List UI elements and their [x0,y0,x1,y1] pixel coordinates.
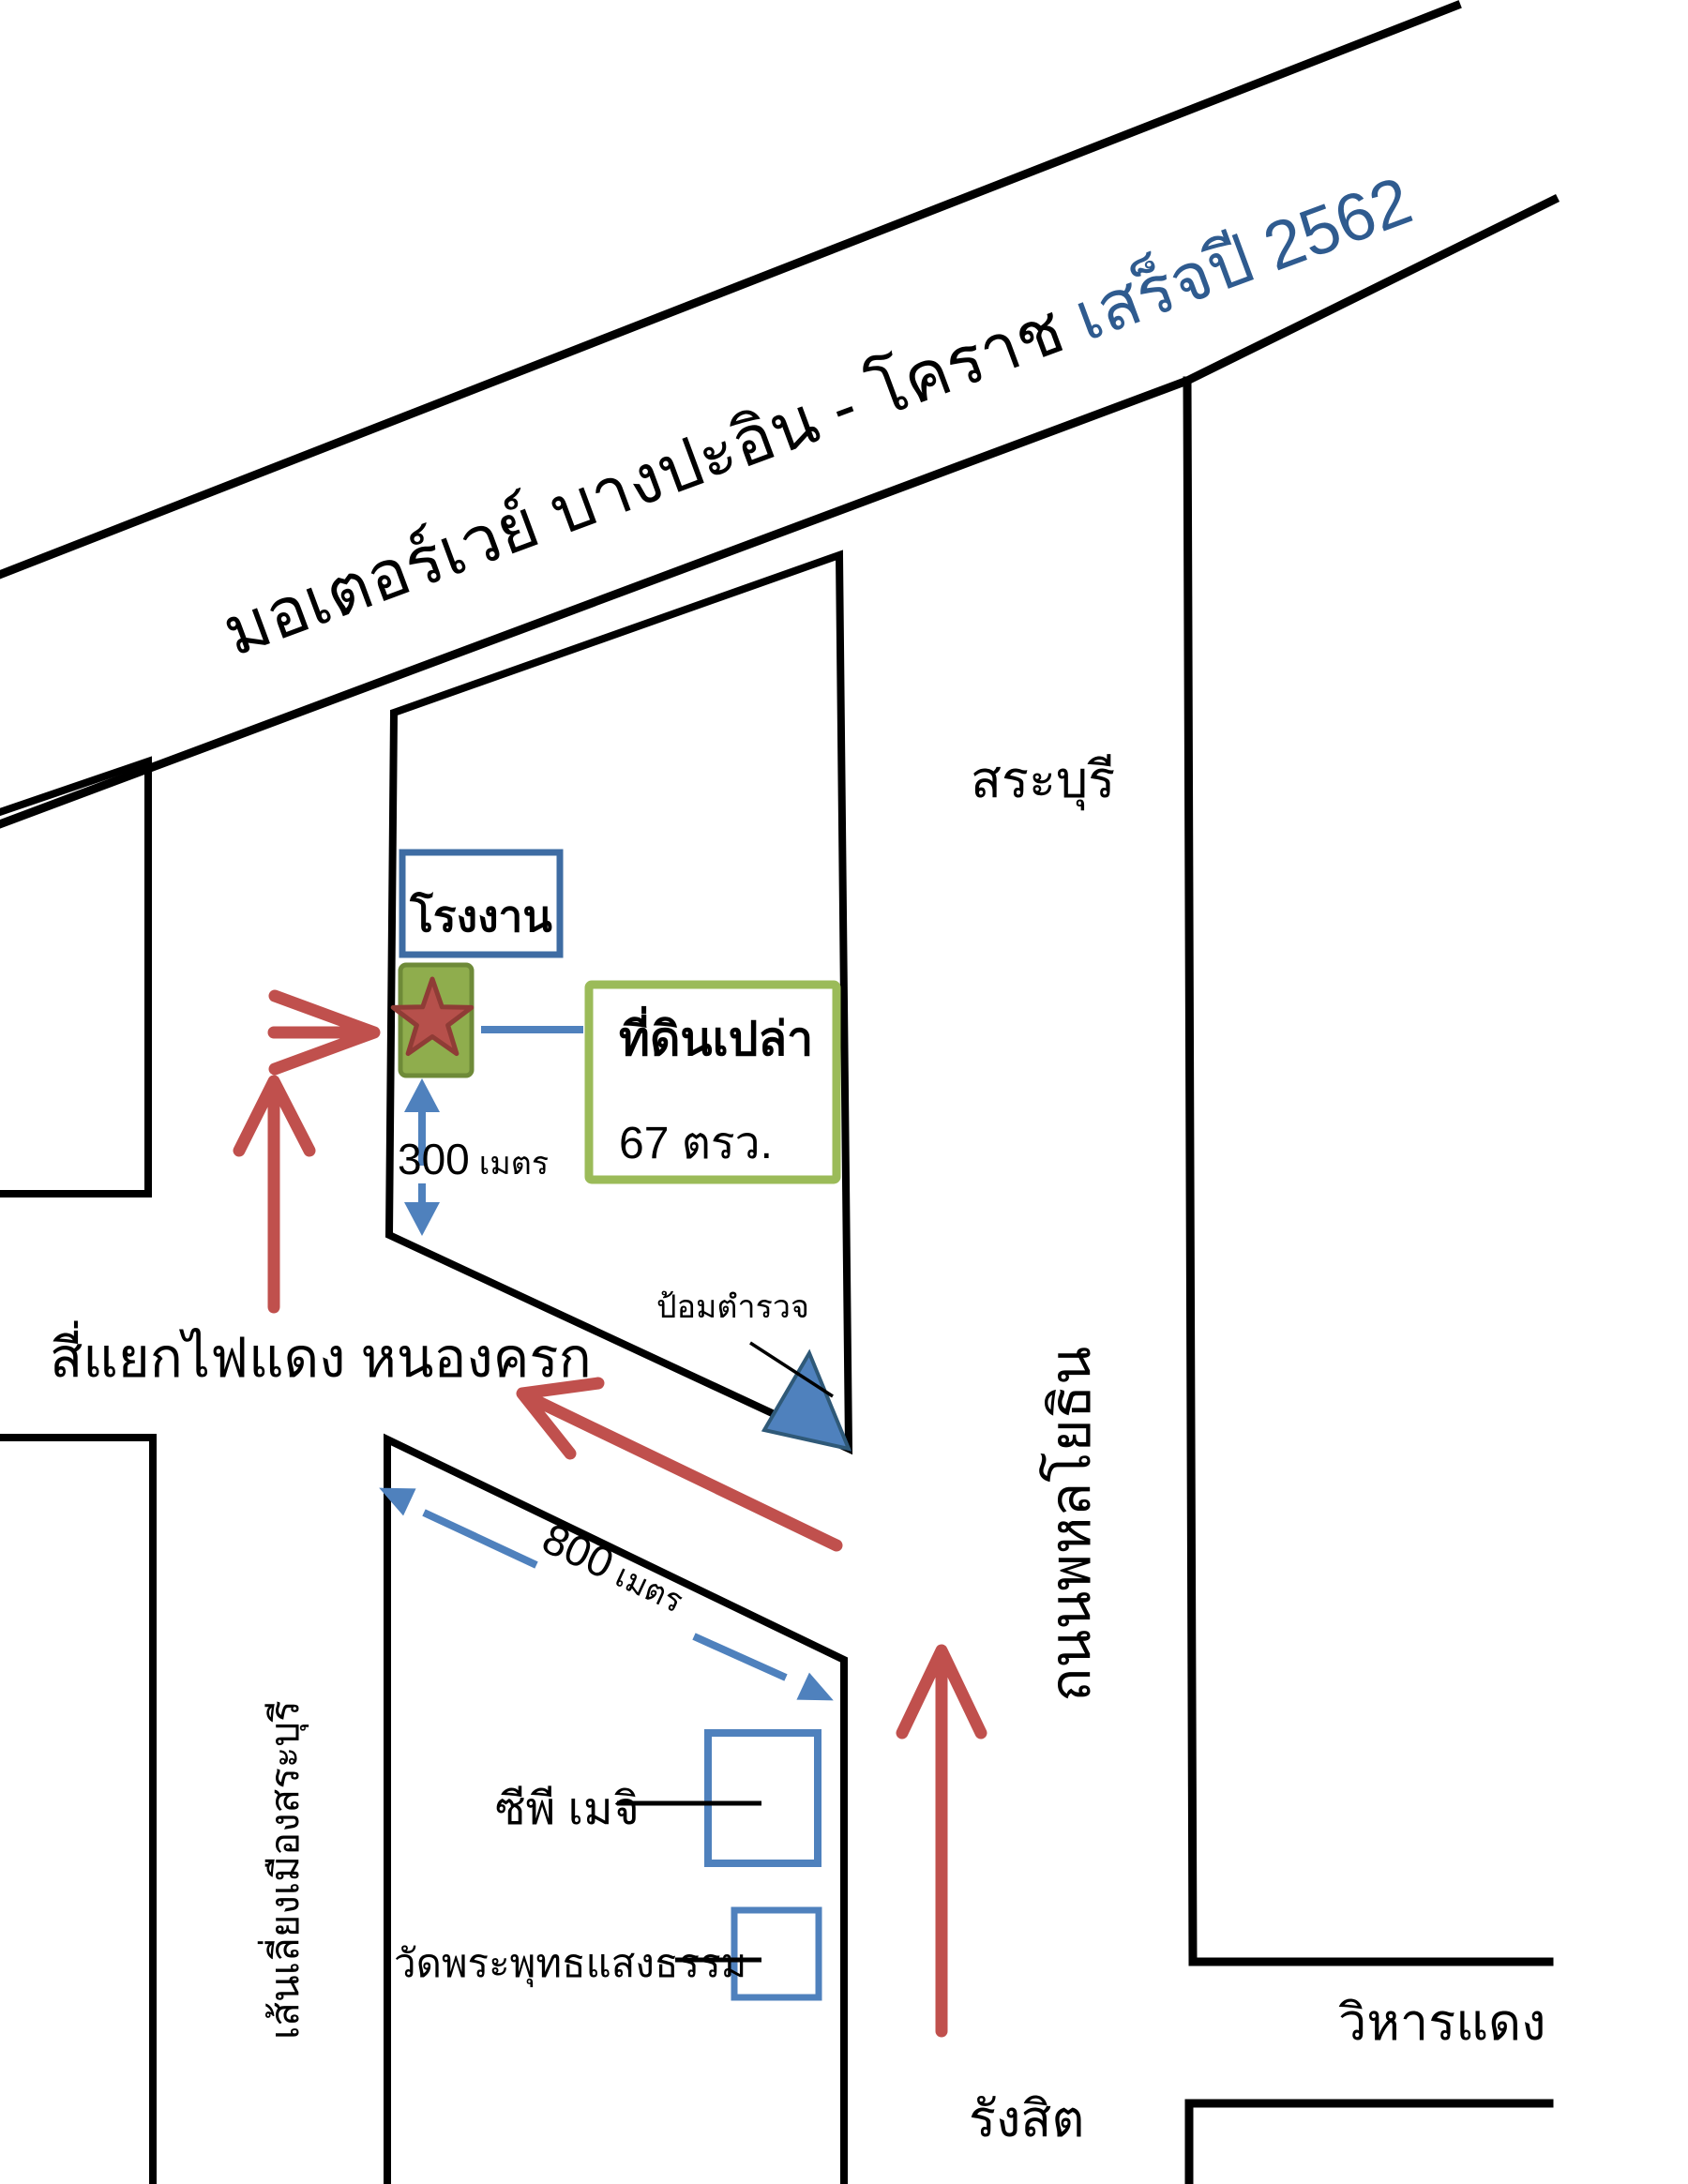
plot-name-label: ที่ดินเปล่า [619,1006,813,1065]
measure-800-arrowhead-downright-icon [796,1673,839,1714]
measure-800-arrowhead-upleft-icon [372,1474,415,1515]
plot-area-label: 67 ตรว. [619,1119,773,1168]
route-arrow-north-icon [902,1650,981,2031]
phahonyothin-road-label: ถนนพหลโยธิน [1038,1347,1102,1702]
distance-800-label: 800เมตร [535,1514,693,1621]
direction-north-label: สระบุรี [971,752,1115,811]
route-arrow-right-icon [274,996,374,1069]
direction-south-label: รังสิต [969,2091,1084,2147]
factory-label: โรงงาน [409,891,552,941]
block-lower-left [0,1438,153,2184]
measure-800-shaft-upper [424,1513,536,1565]
cp-meiji-label: ซีพี เมจิ [495,1785,640,1834]
temple-box [734,1910,819,1997]
temple-label: วัดพระพุทธแสงธรรม [394,1941,746,1988]
intersection-label: สี่แยกไฟแดง หนองครก [50,1320,592,1389]
motorway-completion-label: เสร็จปี 2562 [1064,160,1422,355]
direction-east-label: วิหารแดง [1338,1995,1545,2051]
bypass-road-label: เส้นเลี่ยงเมืองสระบุรี [258,1700,309,2040]
block-upper-left [0,761,148,1194]
map: โรงงาน ที่ดินเปล่า 67 ตรว. 300เมตร 800เม… [0,0,1688,2184]
cp-meiji-box [708,1733,818,1863]
measure-800-shaft-lower [694,1636,786,1678]
phahonyothin-west-edge [1187,381,1549,1962]
police-box-label: ป้อมตำรวจ [656,1289,809,1325]
map-canvas: โรงงาน ที่ดินเปล่า 67 ตรว. 300เมตร 800เม… [0,0,1688,2184]
route-arrow-up-icon [239,1081,309,1307]
wihandaeng-junction-edge [1189,2103,1549,2184]
